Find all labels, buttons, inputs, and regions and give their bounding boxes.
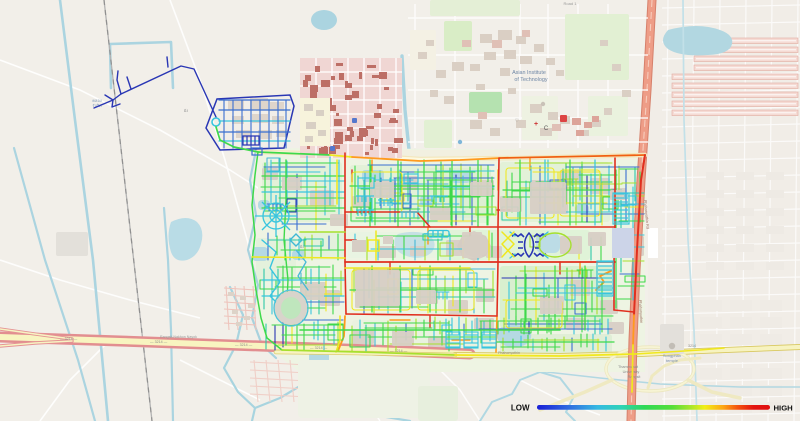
svg-text:ผัง: ผัง — [184, 108, 188, 113]
svg-text:C: C — [544, 126, 549, 132]
svg-text:3214: 3214 — [688, 344, 696, 348]
svg-text:— 3214 —: — 3214 — — [60, 337, 78, 341]
svg-text:+: + — [534, 121, 538, 128]
svg-text:— 3214 —: — 3214 — — [150, 340, 168, 344]
svg-text:LOW: LOW — [511, 404, 530, 413]
svg-text:♡: ♡ — [515, 118, 520, 124]
svg-text:temple: temple — [666, 358, 679, 363]
svg-text:Rangsit-Nakhon Nayok: Rangsit-Nakhon Nayok — [160, 335, 197, 339]
svg-text:Phahonyothin: Phahonyothin — [498, 351, 520, 355]
svg-text:— 3214 —: — 3214 — — [310, 346, 328, 350]
svg-text:— 3214 —: — 3214 — — [235, 343, 253, 347]
svg-text:Rangsit: Rangsit — [628, 375, 642, 379]
svg-text:Thammasat: Thammasat — [618, 365, 639, 369]
svg-text:Road 1: Road 1 — [564, 1, 578, 6]
svg-text:Asian Institute: Asian Institute — [512, 70, 546, 76]
svg-text:University: University — [623, 370, 640, 374]
svg-text:HIGH: HIGH — [774, 403, 794, 412]
svg-text:of Technology: of Technology — [514, 77, 547, 83]
